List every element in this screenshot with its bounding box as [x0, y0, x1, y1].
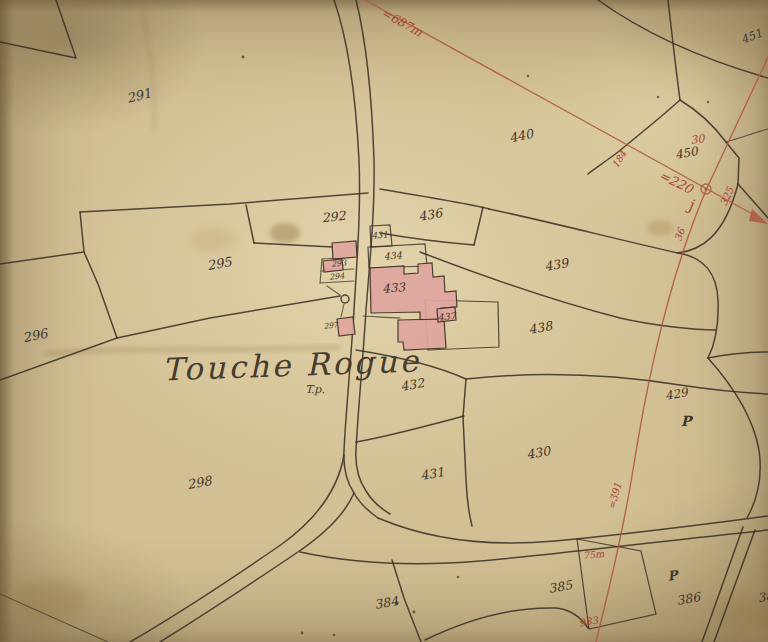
- boundary-line: [588, 100, 680, 174]
- parcel-label-293: 293: [331, 258, 348, 269]
- parcel-label-440: 440: [508, 126, 535, 146]
- parcel-boundaries: [0, 0, 768, 642]
- parcel-label-294: 294: [329, 271, 346, 282]
- red-annotation-30: 30: [690, 132, 707, 147]
- boundary-line: [356, 416, 464, 442]
- parcel-label-439: 439: [543, 255, 570, 274]
- boundary-line: [380, 233, 474, 245]
- place-mark: T.p.: [305, 383, 325, 396]
- parcel-label-297: 297: [323, 320, 339, 331]
- parcel-label-450: 450: [674, 144, 700, 162]
- survey-line-b: [596, 57, 768, 642]
- boundary-line: [678, 253, 718, 358]
- boundary-line: [425, 608, 588, 640]
- parcel-label-434: 434: [383, 249, 403, 261]
- boundary-line: [474, 207, 483, 245]
- parcel-label-429: 429: [664, 385, 690, 403]
- boundary-line: [117, 296, 340, 338]
- boundary-line: [0, 0, 76, 58]
- parcel-label-295: 295: [206, 254, 234, 273]
- boundary-line: [246, 205, 254, 243]
- boundary-line: [327, 286, 340, 295]
- parcel-label-296: 296: [21, 325, 50, 345]
- boundary-line: [254, 243, 333, 247]
- parcel-label-438: 438: [527, 318, 554, 337]
- boundary-line: [463, 379, 472, 526]
- survey-line-a: [365, 0, 756, 216]
- boundary-line: [80, 212, 117, 338]
- boundary-line: [726, 129, 768, 142]
- parcel-label-431: 431: [419, 464, 445, 483]
- place-name-label: Touche Rogue: [162, 343, 422, 388]
- boundary-line: [466, 374, 768, 394]
- letter-p-upper: P: [681, 413, 694, 429]
- red-annotation-j: j: [684, 195, 696, 214]
- boundary-line: [0, 252, 84, 264]
- boundary-line: [341, 304, 344, 317]
- map-svg: 291 295 296 298 292 431 436 434 293 294 …: [0, 0, 768, 642]
- parcel-label-431-small: 431: [371, 229, 388, 240]
- parcel-label-298: 298: [186, 473, 215, 492]
- road-edge: [300, 530, 768, 564]
- letter-p-lower: P: [666, 567, 680, 584]
- parcel-label-436: 436: [417, 205, 444, 224]
- building: [332, 241, 357, 259]
- parcel-label-292: 292: [321, 208, 347, 226]
- red-annotation-391: =391: [606, 481, 624, 510]
- boundary-line: [708, 352, 768, 358]
- paper-crease: [142, 8, 154, 130]
- red-annotation-75m: 75m: [583, 548, 606, 561]
- parcel-label-433: 433: [382, 280, 407, 296]
- parcel-label-386: 386: [675, 589, 702, 608]
- boundary-line: [320, 281, 354, 283]
- boundary-line: [0, 338, 117, 380]
- road-edge: [160, 493, 354, 642]
- road-edge: [130, 455, 344, 642]
- parcel-label-385: 385: [547, 577, 574, 596]
- cadastral-map-sheet: 291 295 296 298 292 431 436 434 293 294 …: [0, 0, 768, 642]
- road-edge: [378, 516, 768, 543]
- parcel-label-430: 430: [525, 443, 552, 462]
- parcel-label-38-partial: 38: [757, 589, 768, 606]
- parcel-label-384: 384: [373, 593, 400, 612]
- boundary-line: [363, 316, 400, 318]
- well-marker: [341, 295, 349, 303]
- parcel-label-291: 291: [125, 85, 153, 106]
- red-annotation-184: 184: [610, 148, 629, 170]
- boundary-line: [668, 0, 680, 100]
- survey-arrowhead: [749, 209, 768, 224]
- boundary-line: [726, 142, 739, 184]
- red-annotation-983: 983: [578, 614, 599, 628]
- survey-station-dot: [704, 187, 707, 190]
- parcel-label-437: 437: [437, 310, 458, 323]
- building: [337, 317, 355, 336]
- red-annotation-36: 36: [672, 225, 687, 242]
- parcel-label-451: 451: [739, 26, 765, 47]
